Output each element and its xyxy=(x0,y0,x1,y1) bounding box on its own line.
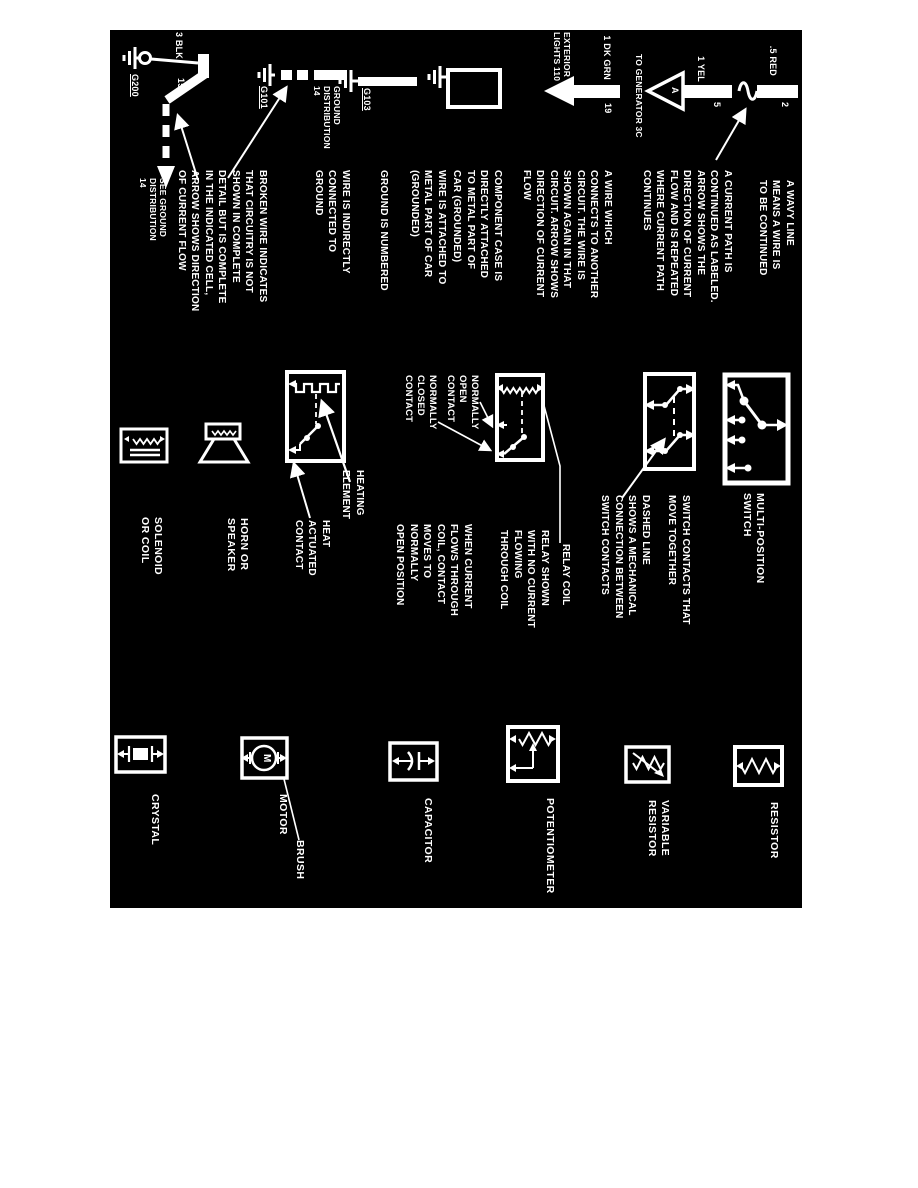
rotated-canvas: .5 RED 2 A WAVY LINE MEANS A WIRE IS TO … xyxy=(110,30,802,908)
diagram-panel: .5 RED 2 A WAVY LINE MEANS A WIRE IS TO … xyxy=(110,30,802,908)
pointer-arrows-overlay xyxy=(110,30,802,908)
scanned-manual-page: { "colors": {"paper":"#ffffff","panel":"… xyxy=(0,0,918,1188)
